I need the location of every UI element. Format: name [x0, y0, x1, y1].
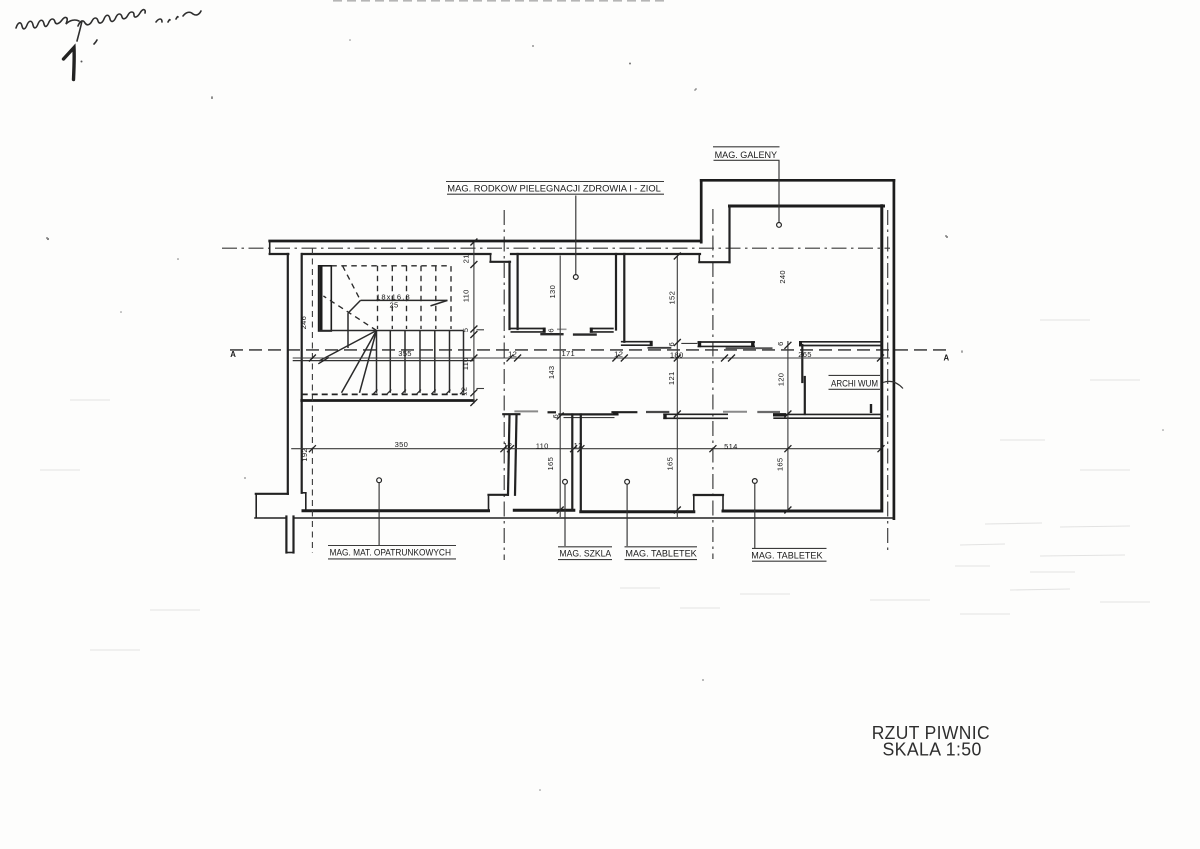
svg-text:180: 180	[670, 350, 684, 359]
svg-text:192: 192	[300, 448, 309, 462]
svg-text:265: 265	[798, 350, 812, 359]
svg-text:121: 121	[667, 372, 676, 386]
svg-text:171: 171	[562, 349, 576, 358]
svg-text:12: 12	[508, 349, 517, 358]
svg-text:MAG. RODKOW PIELEGNACJI ZDROW: MAG. RODKOW PIELEGNACJI ZDROWIA I - ZIOL	[447, 184, 661, 195]
svg-text:6: 6	[667, 342, 676, 347]
svg-text:MAG. GALENY: MAG. GALENY	[715, 150, 778, 161]
svg-text:246: 246	[299, 316, 308, 330]
svg-text:21: 21	[462, 254, 471, 263]
svg-text:110: 110	[461, 357, 470, 370]
svg-text:165: 165	[665, 457, 674, 471]
svg-text:110: 110	[461, 289, 470, 302]
svg-text:143: 143	[547, 366, 556, 380]
svg-text:MAG. SZKLA: MAG. SZKLA	[559, 549, 611, 560]
svg-text:165: 165	[546, 457, 555, 471]
svg-text:MAG. MAT. OPATRUNKOWYCH: MAG. MAT. OPATRUNKOWYCH	[330, 548, 452, 559]
svg-text:12: 12	[459, 387, 468, 396]
svg-text:12: 12	[503, 441, 512, 450]
svg-text:6: 6	[776, 341, 785, 346]
svg-text:514: 514	[724, 442, 738, 451]
svg-text:355: 355	[398, 349, 412, 358]
svg-text:25: 25	[389, 301, 398, 310]
svg-text:SKALA 1:50: SKALA 1:50	[883, 738, 982, 759]
svg-text:350: 350	[395, 440, 409, 449]
svg-text:MAG. TABLETEK: MAG. TABLETEK	[625, 548, 697, 559]
svg-text:6: 6	[547, 328, 556, 333]
svg-text:152: 152	[668, 291, 677, 305]
svg-text:MAG. TABLETEK: MAG. TABLETEK	[751, 550, 823, 561]
svg-text:ARCHI WUM: ARCHI WUM	[831, 378, 878, 389]
svg-text:130: 130	[548, 285, 557, 299]
svg-text:165: 165	[775, 458, 784, 472]
svg-text:12: 12	[614, 349, 623, 358]
svg-text:240: 240	[778, 270, 787, 284]
svg-text:110: 110	[536, 441, 549, 450]
svg-text:12: 12	[574, 441, 583, 450]
svg-text:5: 5	[461, 328, 470, 333]
svg-text:120: 120	[777, 373, 786, 387]
svg-text:A: A	[944, 354, 950, 363]
svg-text:A: A	[230, 350, 236, 359]
